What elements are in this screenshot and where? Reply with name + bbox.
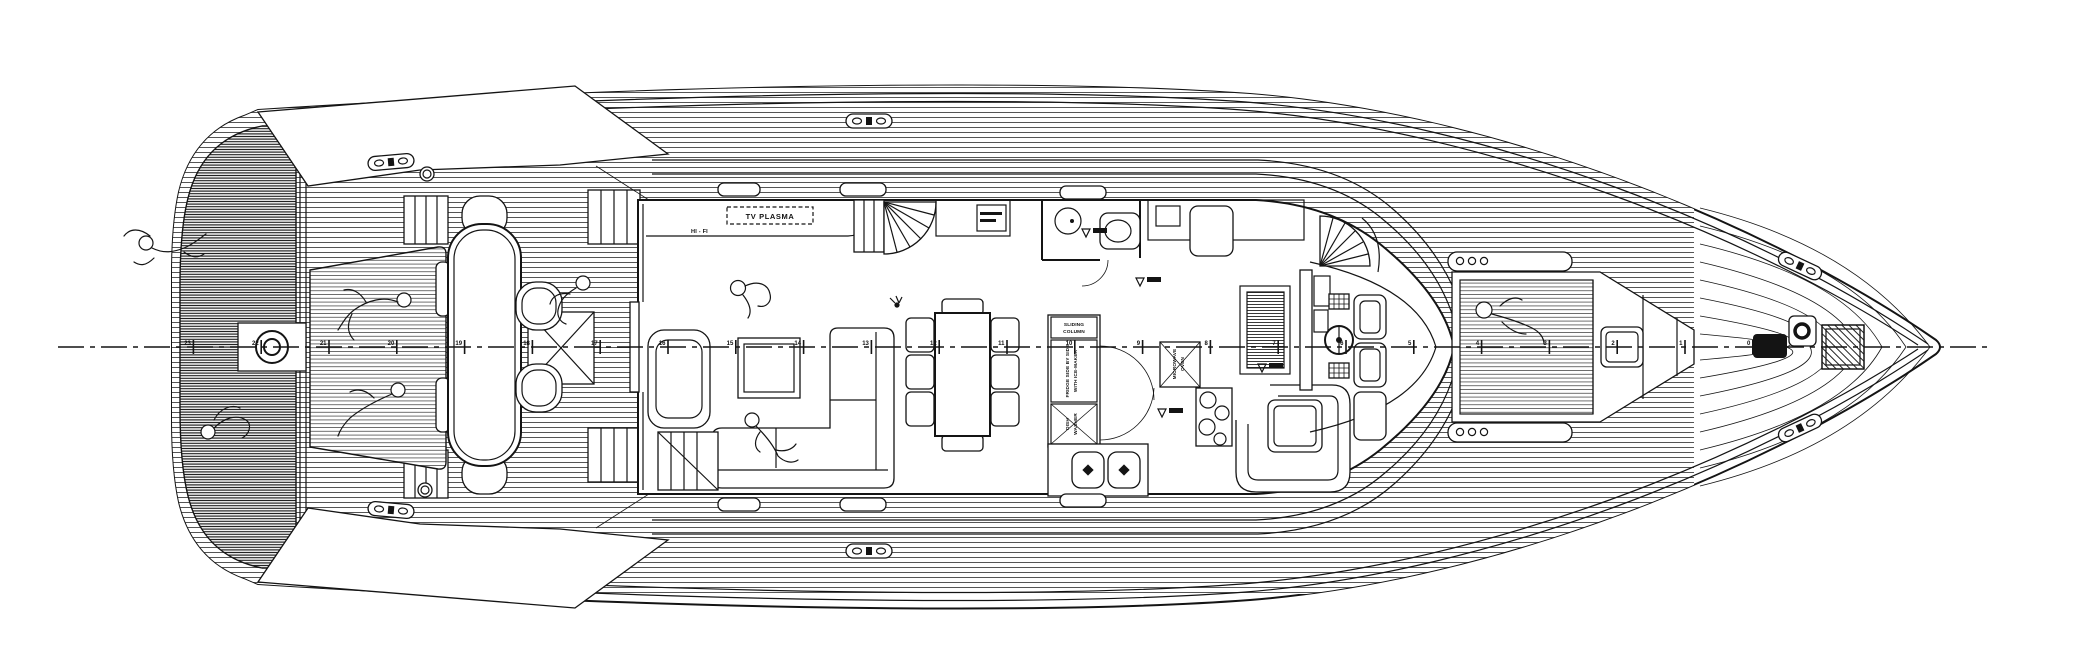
station-number: 17 (591, 341, 598, 347)
aft-sunpad (310, 247, 450, 469)
dishwasher-label: DISH (1065, 418, 1071, 430)
sliding-column-label: SLIDING (1064, 322, 1084, 328)
microwave-label: MICROWAVE (1172, 348, 1178, 379)
station-number: 11 (998, 341, 1005, 347)
station-number: 12 (930, 341, 937, 347)
hifi-label: HI - FI (691, 229, 708, 235)
station-number: 18 (523, 341, 530, 347)
station-number: 19 (455, 341, 462, 347)
station-number: 10 (1066, 341, 1073, 347)
fridge-label: FRIDGE SIDE BY SIDE (1065, 344, 1071, 398)
yacht-deck-plan: TV PLASMA HI - FI (0, 0, 2097, 672)
station-number: 22 (252, 341, 259, 347)
handrail-bottom (1448, 423, 1572, 442)
stairs-down (658, 432, 718, 490)
dishwasher-label2: WASHER (1073, 413, 1079, 435)
sliding-column-label2: COLUMN (1063, 329, 1085, 335)
armchair (648, 330, 710, 428)
cleat (846, 114, 892, 128)
microwave-label2: OVEN (1180, 357, 1186, 371)
helm-seats (1354, 295, 1386, 440)
tv-plasma-label: TV PLASMA (746, 212, 795, 221)
station-number: 16 (659, 341, 666, 347)
station-number: 15 (727, 341, 734, 347)
microwave: MICROWAVE OVEN (1160, 342, 1200, 387)
station-number: 21 (320, 341, 327, 347)
cleat (846, 544, 892, 558)
galley-sink (1048, 444, 1148, 496)
deck-plan-drawing: TV PLASMA HI - FI (0, 0, 2097, 672)
handrail-top (1448, 252, 1572, 271)
station-number: 14 (794, 341, 801, 347)
bar-unit (1240, 286, 1290, 374)
station-number: 13 (862, 341, 869, 347)
station-number: 20 (388, 341, 395, 347)
fridge-label2: WITH ICE-MAKER (1073, 349, 1079, 392)
station-number: 23 (184, 341, 191, 347)
cooktop (1196, 388, 1232, 446)
